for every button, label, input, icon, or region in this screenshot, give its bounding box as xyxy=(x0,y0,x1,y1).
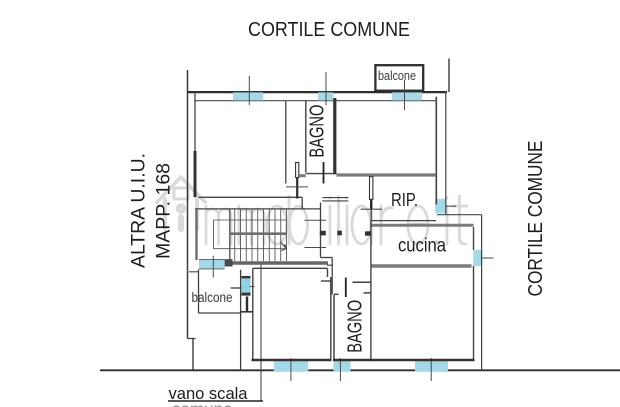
svg-text:MAPP. 168: MAPP. 168 xyxy=(153,163,175,259)
svg-text:balcone: balcone xyxy=(192,290,233,305)
svg-text:comune: comune xyxy=(172,400,232,407)
svg-text:CORTILE COMUNE: CORTILE COMUNE xyxy=(248,19,410,41)
svg-text:cucina: cucina xyxy=(398,236,446,257)
svg-text:balcone: balcone xyxy=(378,68,416,83)
svg-text:CORTILE COMUNE: CORTILE COMUNE xyxy=(525,141,547,297)
svg-text:RIP.: RIP. xyxy=(391,190,418,210)
svg-text:ALTRA U.I.U.: ALTRA U.I.U. xyxy=(128,153,150,268)
svg-text:BAGNO: BAGNO xyxy=(307,105,329,158)
svg-text:BAGNO: BAGNO xyxy=(345,300,367,353)
